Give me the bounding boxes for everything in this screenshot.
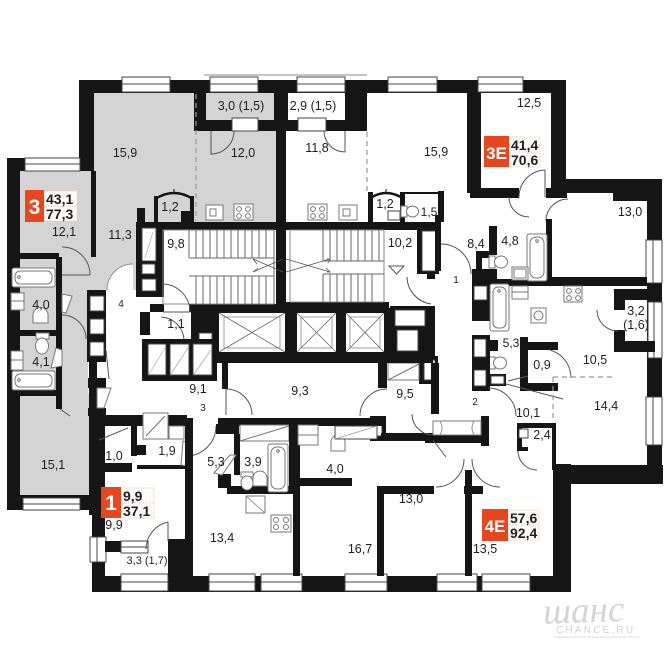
- svg-text:15,9: 15,9: [113, 146, 137, 160]
- svg-text:4,8: 4,8: [501, 234, 518, 248]
- svg-text:1,2: 1,2: [161, 200, 178, 214]
- svg-text:2,9 (1,5): 2,9 (1,5): [290, 99, 337, 113]
- svg-text:13,0: 13,0: [399, 492, 423, 506]
- svg-text:11,3: 11,3: [108, 228, 131, 242]
- svg-text:13,4: 13,4: [210, 531, 234, 545]
- svg-text:3: 3: [29, 196, 41, 219]
- svg-text:57,6: 57,6: [510, 510, 537, 526]
- svg-text:1: 1: [453, 275, 459, 286]
- svg-text:12,5: 12,5: [517, 96, 541, 110]
- svg-text:CHANCE.RU: CHANCE.RU: [556, 625, 635, 636]
- svg-text:13,0: 13,0: [618, 205, 642, 219]
- svg-text:12,1: 12,1: [52, 225, 76, 239]
- svg-text:9,8: 9,8: [167, 237, 184, 251]
- svg-text:41,4: 41,4: [511, 137, 538, 153]
- svg-text:9,9: 9,9: [105, 518, 122, 532]
- svg-text:4,0: 4,0: [32, 298, 49, 312]
- svg-text:3,3 (1,7): 3,3 (1,7): [127, 555, 168, 567]
- svg-text:3Е: 3Е: [486, 144, 507, 163]
- svg-text:4Е: 4Е: [485, 517, 506, 536]
- svg-text:1,9: 1,9: [158, 444, 175, 458]
- svg-text:10,5: 10,5: [583, 353, 607, 367]
- svg-text:9,3: 9,3: [291, 384, 308, 398]
- svg-text:9,5: 9,5: [396, 387, 413, 401]
- svg-text:37,1: 37,1: [123, 503, 150, 519]
- svg-text:16,7: 16,7: [348, 542, 372, 556]
- svg-text:9,1: 9,1: [189, 382, 206, 396]
- svg-text:77,3: 77,3: [46, 206, 73, 222]
- svg-text:1,5: 1,5: [421, 205, 438, 219]
- svg-text:0,9: 0,9: [533, 358, 550, 372]
- svg-text:4: 4: [118, 299, 124, 310]
- svg-text:2,4: 2,4: [533, 428, 550, 442]
- svg-text:43,1: 43,1: [46, 191, 73, 207]
- svg-text:9,9: 9,9: [123, 488, 143, 504]
- svg-text:5,3: 5,3: [207, 455, 224, 469]
- svg-text:92,4: 92,4: [510, 525, 537, 541]
- svg-text:11,8: 11,8: [305, 141, 328, 155]
- svg-text:70,6: 70,6: [511, 152, 538, 168]
- svg-text:3,0 (1,5): 3,0 (1,5): [218, 99, 265, 113]
- svg-text:14,4: 14,4: [594, 399, 618, 413]
- svg-text:1,0: 1,0: [105, 449, 122, 463]
- svg-text:5,3: 5,3: [503, 336, 520, 350]
- svg-text:12,0: 12,0: [231, 146, 255, 160]
- svg-text:10,2: 10,2: [388, 236, 412, 250]
- svg-text:3,2: 3,2: [627, 304, 644, 318]
- svg-text:1,1: 1,1: [167, 317, 184, 331]
- svg-text:(1,6): (1,6): [623, 318, 649, 332]
- svg-text:1,2: 1,2: [376, 197, 393, 211]
- svg-text:8,4: 8,4: [467, 237, 484, 251]
- svg-text:10,1: 10,1: [516, 406, 540, 420]
- svg-text:1: 1: [105, 492, 117, 515]
- svg-text:4,0: 4,0: [326, 462, 343, 476]
- svg-text:2: 2: [472, 397, 478, 408]
- svg-text:4,1: 4,1: [32, 355, 49, 369]
- svg-text:3: 3: [200, 403, 206, 414]
- svg-text:15,1: 15,1: [41, 458, 65, 472]
- svg-text:15,9: 15,9: [424, 145, 448, 159]
- svg-text:13,5: 13,5: [473, 542, 497, 556]
- svg-text:3,9: 3,9: [244, 455, 261, 469]
